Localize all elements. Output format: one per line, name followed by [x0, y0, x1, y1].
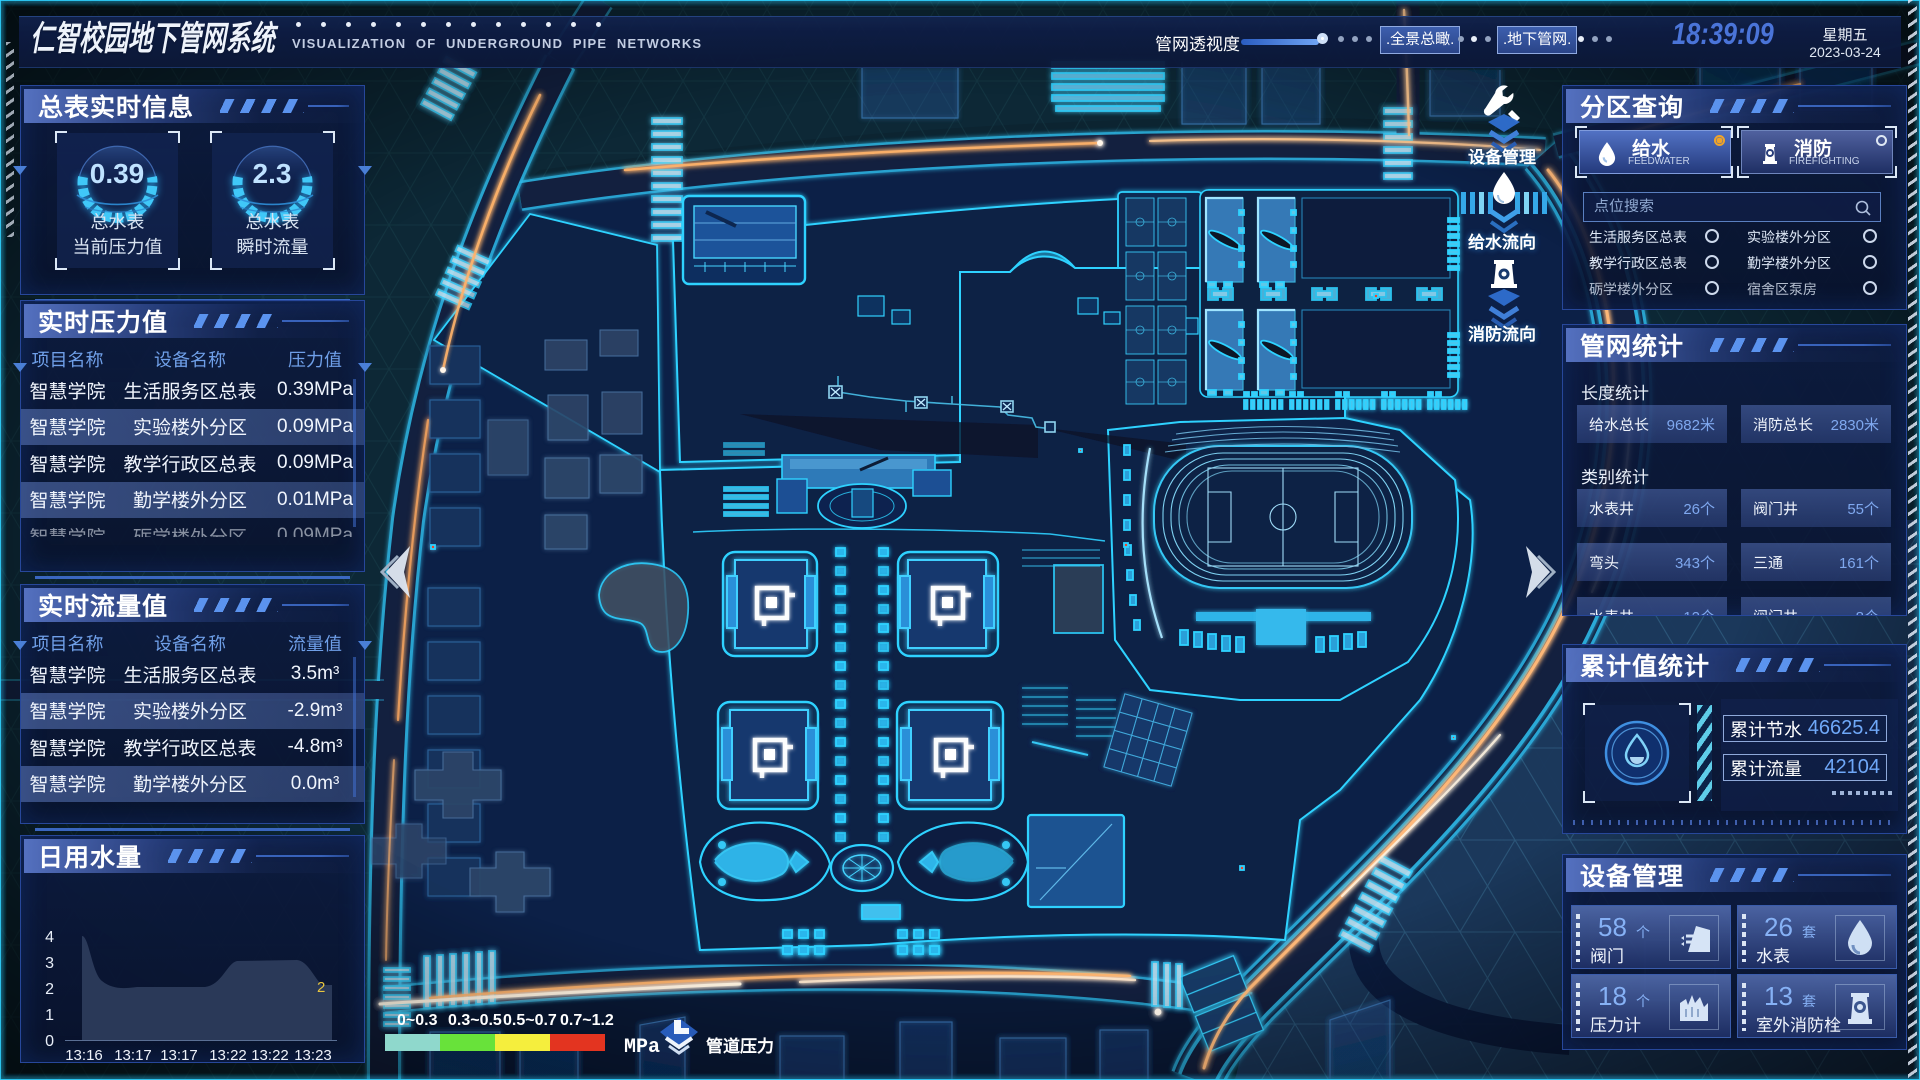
- svg-text:0.39: 0.39: [90, 158, 145, 189]
- svg-text:2: 2: [317, 979, 325, 996]
- svg-text:13:22: 13:22: [209, 1047, 247, 1063]
- svg-text:3: 3: [45, 955, 54, 972]
- svg-text:13:17: 13:17: [160, 1047, 198, 1063]
- svg-text:13:16: 13:16: [65, 1047, 103, 1063]
- svg-text:4: 4: [45, 929, 54, 946]
- svg-text:13:17: 13:17: [114, 1047, 152, 1063]
- svg-text:2.3: 2.3: [253, 158, 292, 189]
- svg-text:0: 0: [45, 1033, 54, 1050]
- svg-text:13:23: 13:23: [294, 1047, 332, 1063]
- svg-text:13:22: 13:22: [251, 1047, 289, 1063]
- svg-text:2: 2: [45, 981, 54, 998]
- svg-text:1: 1: [45, 1007, 54, 1024]
